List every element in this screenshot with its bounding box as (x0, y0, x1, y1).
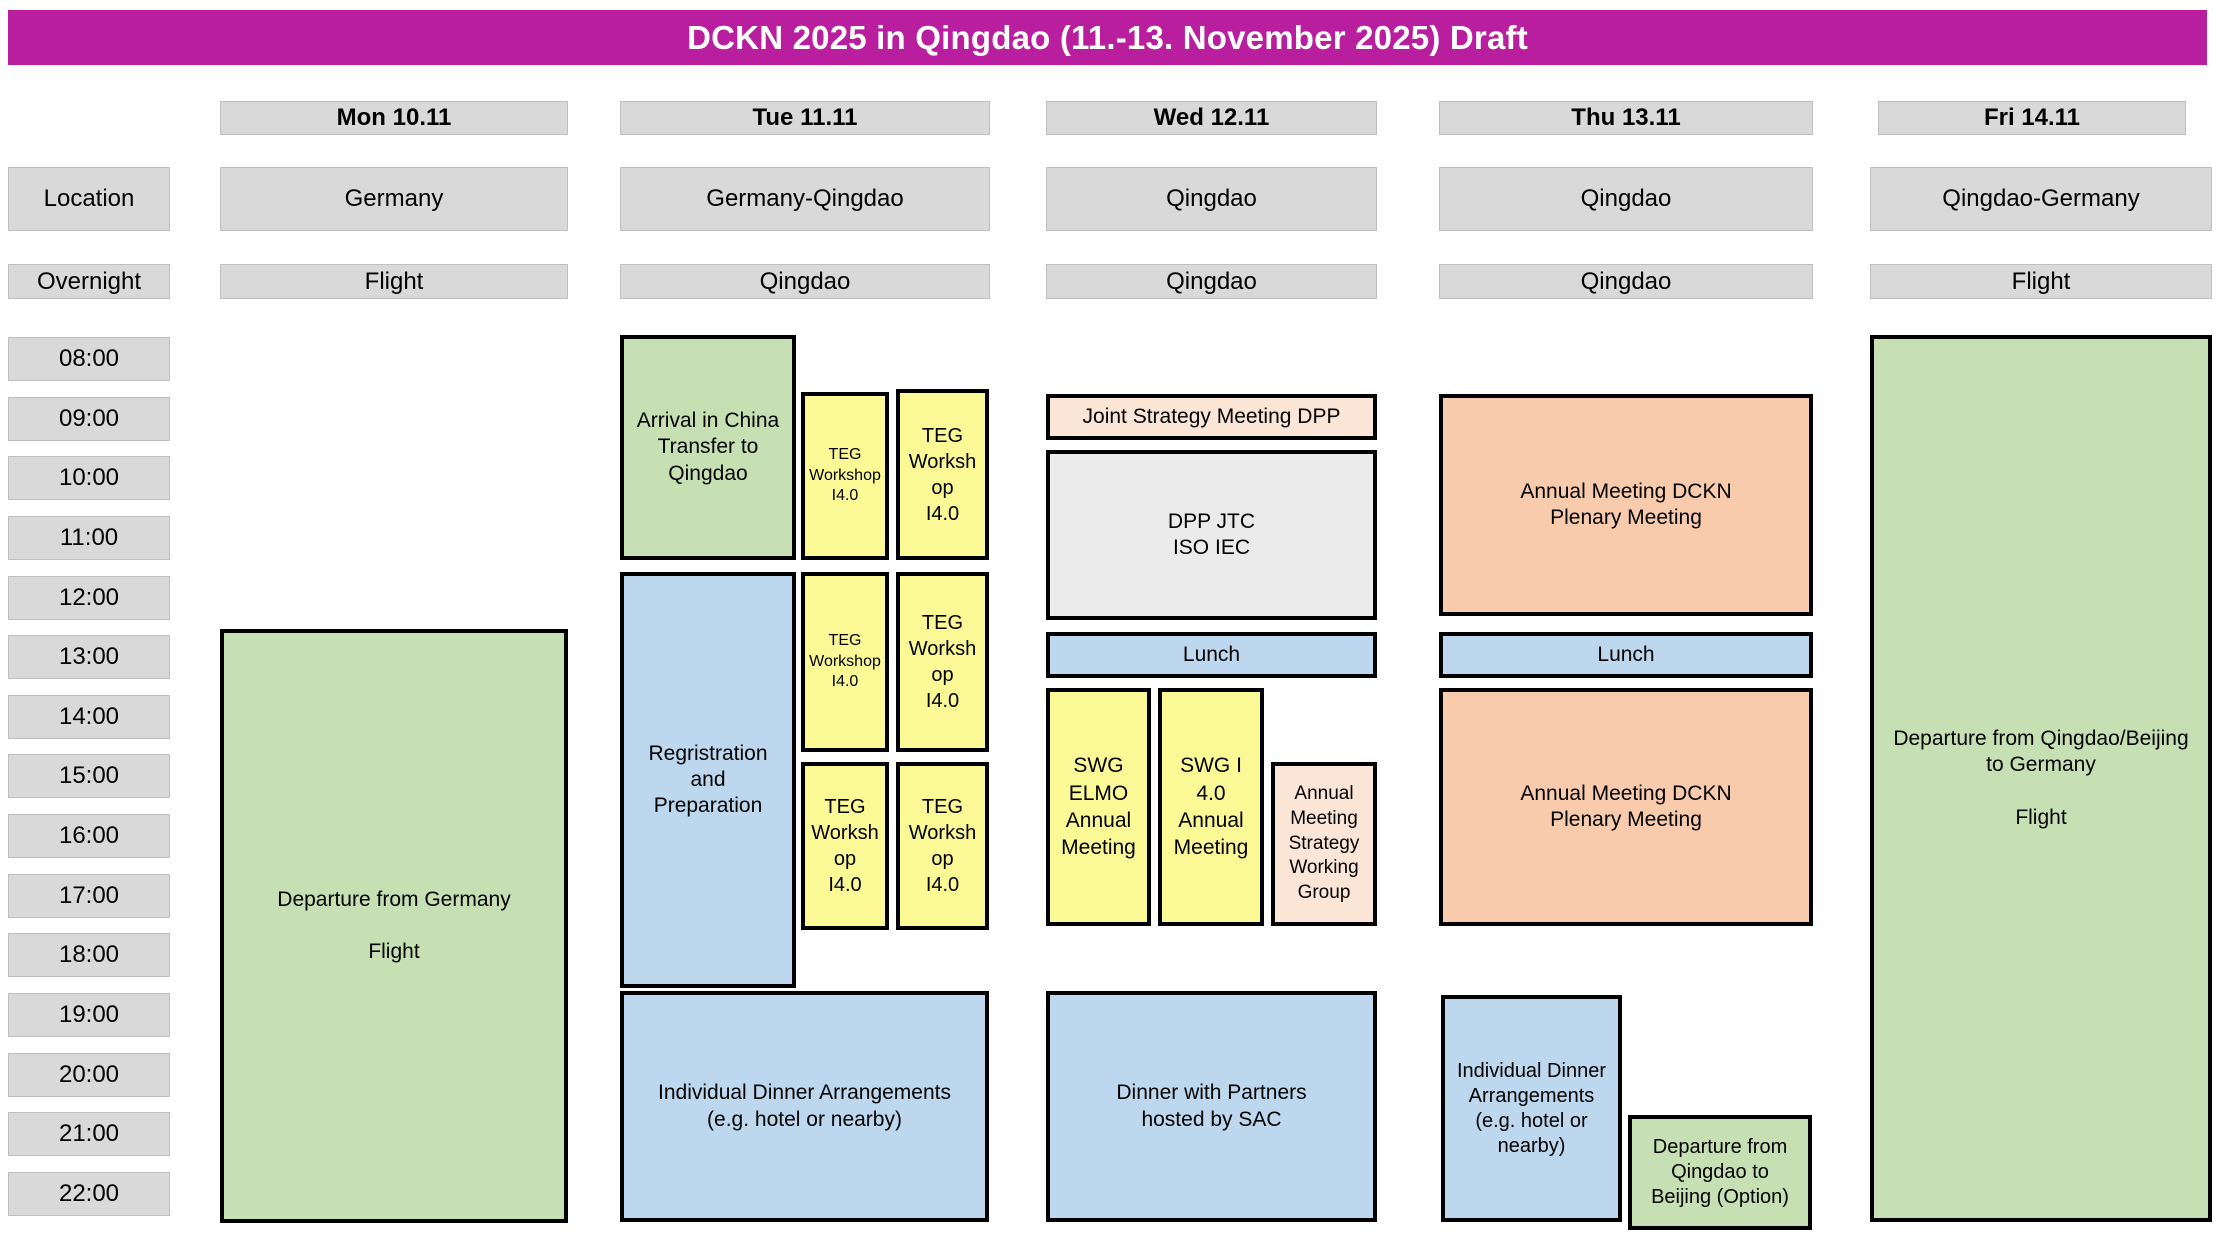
location-fri: Qingdao-Germany (1870, 167, 2212, 231)
location-tue: Germany-Qingdao (620, 167, 990, 231)
event-thu-annual-pm: Annual Meeting DCKN Plenary Meeting (1439, 688, 1813, 926)
event-wed-lunch: Lunch (1046, 632, 1377, 678)
title-bar: DCKN 2025 in Qingdao (11.-13. November 2… (8, 10, 2207, 65)
event-wed-dinner: Dinner with Partners hosted by SAC (1046, 991, 1377, 1222)
event-fri-departure: Departure from Qingdao/Beijing to German… (1870, 335, 2212, 1222)
event-tue-teg-1a: TEG Workshop I4.0 (801, 392, 889, 560)
overnight-tue: Qingdao (620, 264, 990, 299)
time-label-08-00: 08:00 (8, 337, 170, 381)
day-header-mon: Mon 10.11 (220, 101, 568, 135)
day-header-thu: Thu 13.11 (1439, 101, 1813, 135)
location-thu: Qingdao (1439, 167, 1813, 231)
time-label-20-00: 20:00 (8, 1053, 170, 1097)
event-tue-registration: Regristration and Preparation (620, 572, 796, 988)
event-wed-joint-strategy: Joint Strategy Meeting DPP (1046, 394, 1377, 440)
event-tue-teg-3a: TEG Worksh op I4.0 (801, 762, 889, 930)
day-header-wed: Wed 12.11 (1046, 101, 1377, 135)
page-title: DCKN 2025 in Qingdao (11.-13. November 2… (687, 19, 1528, 57)
event-wed-swg-i40: SWG I 4.0 Annual Meeting (1158, 688, 1264, 926)
time-label-17-00: 17:00 (8, 874, 170, 918)
time-label-09-00: 09:00 (8, 397, 170, 441)
event-wed-swg-elmo: SWG ELMO Annual Meeting (1046, 688, 1151, 926)
overnight-mon: Flight (220, 264, 568, 299)
time-label-12-00: 12:00 (8, 576, 170, 620)
time-label-18-00: 18:00 (8, 933, 170, 977)
event-thu-dinner: Individual Dinner Arrangements (e.g. hot… (1441, 995, 1622, 1222)
time-label-10-00: 10:00 (8, 456, 170, 500)
day-header-fri: Fri 14.11 (1878, 101, 2186, 135)
location-wed: Qingdao (1046, 167, 1377, 231)
time-label-21-00: 21:00 (8, 1112, 170, 1156)
event-wed-dpp-jtc: DPP JTC ISO IEC (1046, 450, 1377, 620)
day-header-tue: Tue 11.11 (620, 101, 990, 135)
time-label-19-00: 19:00 (8, 993, 170, 1037)
event-tue-arrival: Arrival in China Transfer to Qingdao (620, 335, 796, 560)
event-tue-teg-2b: TEG Worksh op I4.0 (896, 572, 989, 752)
event-tue-dinner: Individual Dinner Arrangements (e.g. hot… (620, 991, 989, 1222)
time-label-16-00: 16:00 (8, 814, 170, 858)
location-mon: Germany (220, 167, 568, 231)
event-wed-strategy-wg: Annual Meeting Strategy Working Group (1271, 762, 1377, 926)
overnight-thu: Qingdao (1439, 264, 1813, 299)
event-thu-departure-beijing: Departure from Qingdao to Beijing (Optio… (1628, 1115, 1812, 1230)
event-tue-teg-3b: TEG Worksh op I4.0 (896, 762, 989, 930)
row-label-location: Location (8, 167, 170, 231)
event-thu-lunch: Lunch (1439, 632, 1813, 678)
overnight-fri: Flight (1870, 264, 2212, 299)
time-label-13-00: 13:00 (8, 635, 170, 679)
event-tue-teg-1b: TEG Worksh op I4.0 (896, 389, 989, 560)
event-thu-annual-am: Annual Meeting DCKN Plenary Meeting (1439, 394, 1813, 616)
event-tue-teg-2a: TEG Workshop I4.0 (801, 572, 889, 752)
schedule-page: { "title": "DCKN 2025 in Qingdao (11.-13… (0, 0, 2219, 1237)
event-mon-departure: Departure from Germany Flight (220, 629, 568, 1223)
time-label-14-00: 14:00 (8, 695, 170, 739)
time-label-11-00: 11:00 (8, 516, 170, 560)
overnight-wed: Qingdao (1046, 264, 1377, 299)
row-label-overnight: Overnight (8, 264, 170, 299)
time-label-22-00: 22:00 (8, 1172, 170, 1216)
time-label-15-00: 15:00 (8, 754, 170, 798)
